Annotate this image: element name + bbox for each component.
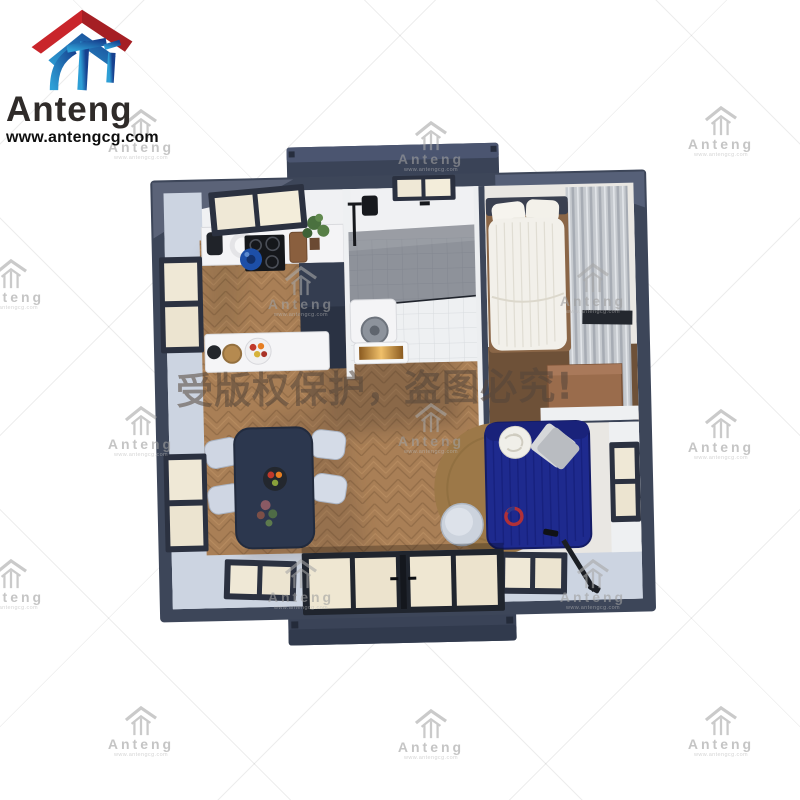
watermark-tile: Antengwww.antengcg.com [675,408,767,461]
kitchen-top-window [208,184,308,237]
bed [486,196,571,353]
knot-pillow [499,426,532,459]
watermark-tile: Antengwww.antengcg.com [95,705,187,758]
right-wall-window [609,442,641,523]
anteng-house-icon [702,408,740,440]
sofa-bed [485,421,592,549]
floor-plan-render [132,124,668,656]
anteng-house-icon [0,558,30,590]
shower-glass-panel [348,224,481,307]
left-window-lower [163,453,208,552]
left-window-upper [159,256,204,353]
bedroom [484,183,639,431]
anteng-house-icon [412,708,450,740]
anteng-logo-icon [26,4,138,94]
toilet [350,299,397,344]
brand-logo: Anteng www.antengcg.com [6,4,166,147]
corrugated-wall-slot [582,310,632,325]
anteng-house-icon [702,705,740,737]
watermark-tile: Antengwww.antengcg.com [385,708,477,761]
page: { "logo": { "name": "Anteng", "website":… [0,0,800,800]
watermark-tile: Antengwww.antengcg.com [675,105,767,158]
brand-website: www.antengcg.com [6,129,166,147]
duvet [488,217,567,351]
amber-transom-window [354,342,408,364]
dining-chair [310,429,347,461]
anteng-house-icon [122,705,160,737]
fruit-plate [245,338,272,365]
dining-chair [310,472,348,505]
door-handle [390,577,398,580]
breakfast-table [205,332,330,373]
brand-name: Anteng [6,92,166,127]
watermark-tile: Antengwww.antengcg.com [675,705,767,758]
entrance-glass-doors [302,543,505,616]
watermark-tile: Antengwww.antengcg.com [0,258,57,311]
desk [547,364,622,411]
anteng-house-icon [702,105,740,137]
door-handle [408,577,416,580]
basket [223,345,241,363]
round-side-table [441,503,484,546]
bottom-left-window [224,559,297,601]
lounge-bottom-window [499,552,568,595]
anteng-house-icon [0,258,30,290]
watermark-tile: Antengwww.antengcg.com [0,558,57,611]
